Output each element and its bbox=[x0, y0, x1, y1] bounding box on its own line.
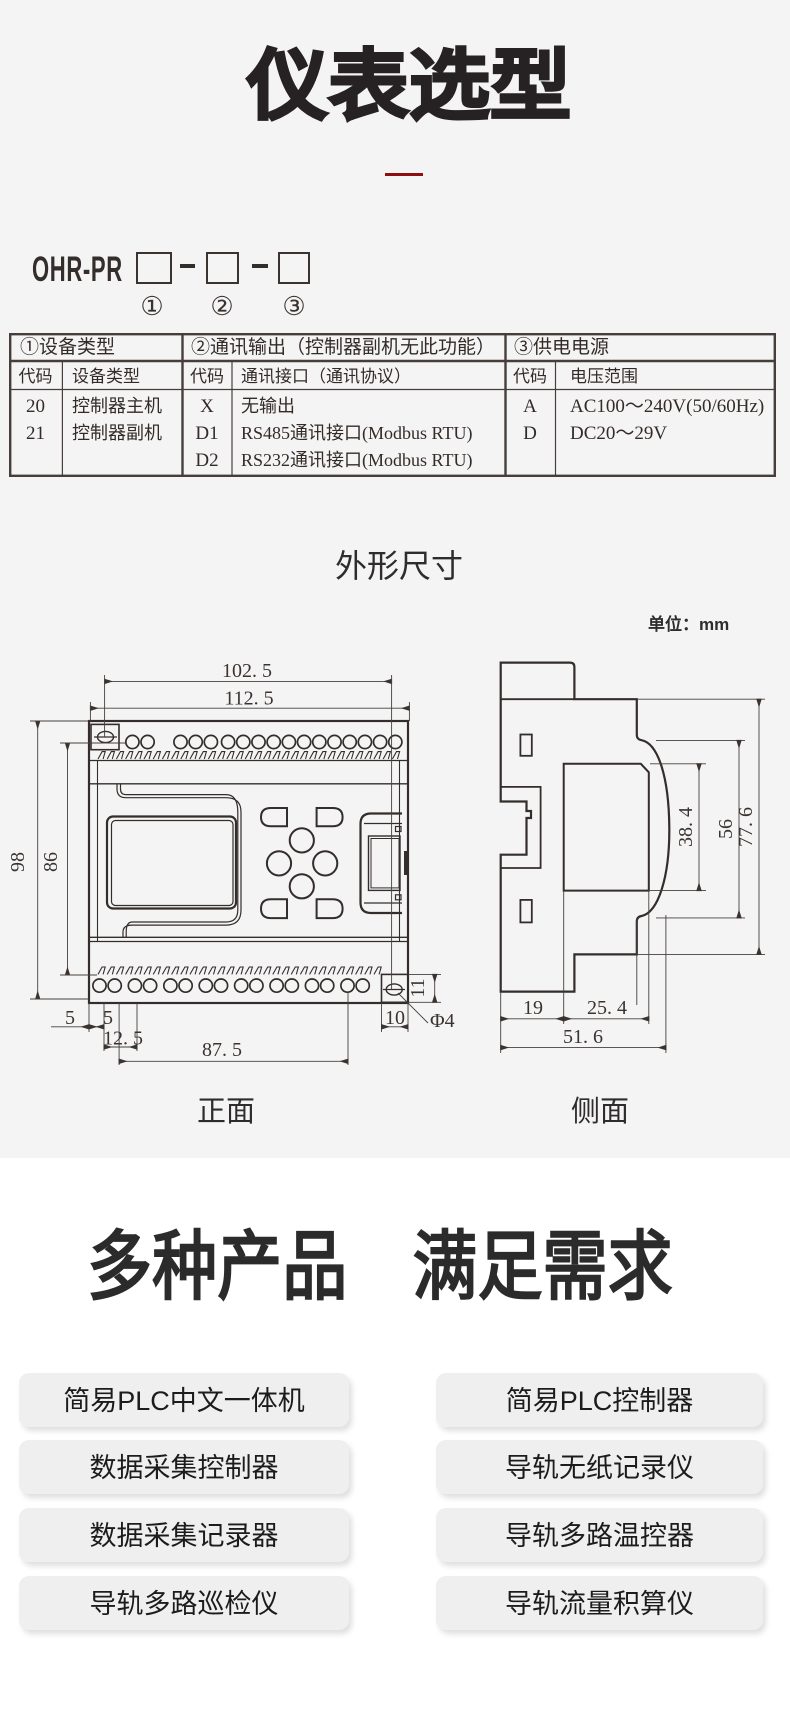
svg-text:11: 11 bbox=[407, 978, 429, 997]
svg-text:25. 4: 25. 4 bbox=[587, 997, 627, 1019]
svg-text:98: 98 bbox=[7, 852, 29, 872]
svg-text:77. 6: 77. 6 bbox=[735, 807, 757, 847]
svg-text:12. 5: 12. 5 bbox=[103, 1028, 143, 1050]
svg-text:112. 5: 112. 5 bbox=[224, 688, 273, 710]
svg-text:87. 5: 87. 5 bbox=[202, 1039, 242, 1061]
svg-text:51. 6: 51. 6 bbox=[563, 1026, 603, 1048]
svg-text:19: 19 bbox=[523, 997, 543, 1019]
svg-text:102. 5: 102. 5 bbox=[222, 660, 272, 682]
svg-text:10: 10 bbox=[385, 1007, 405, 1029]
svg-text:5: 5 bbox=[103, 1007, 113, 1029]
svg-text:Φ4: Φ4 bbox=[430, 1010, 455, 1032]
svg-text:56: 56 bbox=[715, 819, 737, 839]
svg-text:38. 4: 38. 4 bbox=[675, 807, 697, 847]
svg-text:5: 5 bbox=[65, 1007, 75, 1029]
svg-text:86: 86 bbox=[40, 852, 62, 872]
